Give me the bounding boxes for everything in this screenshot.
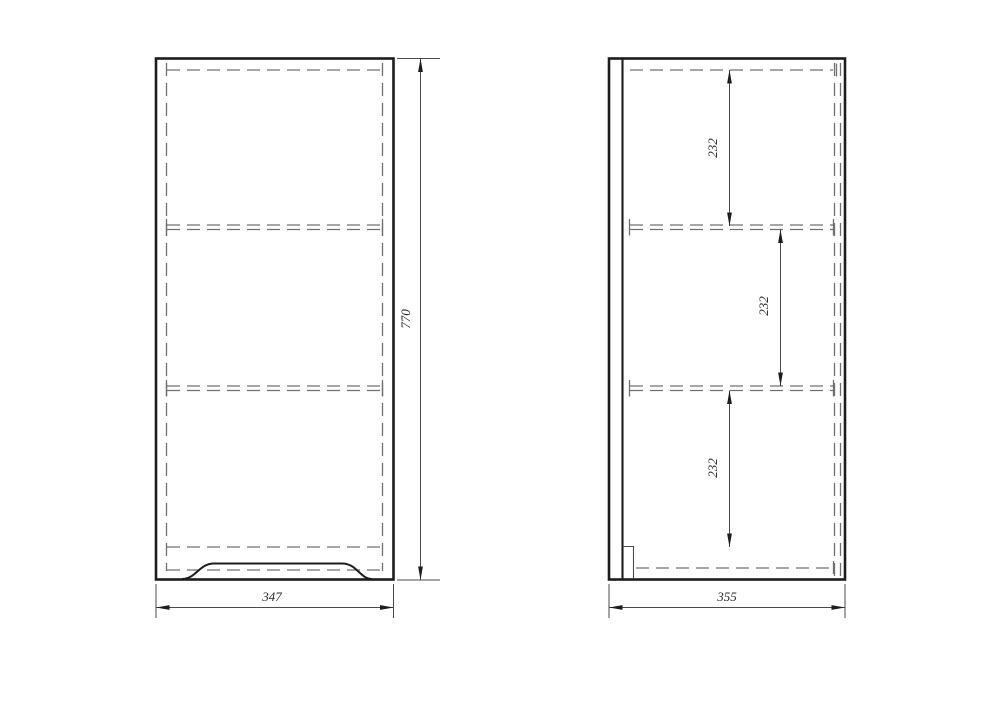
dimension-side-width: 355 (609, 584, 845, 618)
front-shelf-1 (167, 219, 383, 236)
arrow-left-icon (156, 605, 170, 610)
side-shelf-2 (630, 380, 834, 397)
side-cabinet-outline (609, 59, 845, 580)
cabinet-drawing-canvas: 770 347 (0, 0, 1000, 708)
front-view (156, 59, 394, 580)
arrow-left-icon (609, 605, 623, 610)
front-shelf-2 (167, 380, 383, 397)
front-width-dimension-label: 347 (261, 589, 282, 604)
section-middle-dimension-label: 232 (756, 296, 771, 316)
arrow-up-icon (727, 70, 732, 84)
section-bottom-dimension-label: 232 (705, 458, 720, 478)
dimension-height: 770 (397, 59, 440, 581)
arrow-down-icon (727, 534, 732, 548)
dimension-section-middle: 232 (756, 230, 783, 387)
arrow-up-icon (778, 230, 783, 244)
front-cabinet-outline (156, 59, 394, 580)
front-handle-recess-curve (182, 564, 372, 580)
height-dimension-label: 770 (398, 309, 413, 329)
dimension-front-width: 347 (156, 584, 394, 618)
arrow-down-icon (418, 567, 423, 581)
arrow-down-icon (778, 373, 783, 387)
arrow-up-icon (727, 391, 732, 405)
dimension-section-bottom: 232 (705, 391, 732, 548)
side-width-dimension-label: 355 (716, 589, 737, 604)
dimension-section-top: 232 (705, 70, 732, 226)
arrow-up-icon (418, 59, 423, 73)
arrow-right-icon (380, 605, 394, 610)
side-bottom-rail-notch (623, 547, 634, 579)
side-shelf-1 (630, 219, 834, 236)
arrow-right-icon (832, 605, 846, 610)
arrow-down-icon (727, 213, 732, 227)
technical-drawing-page: 770 347 (0, 0, 1000, 708)
section-top-dimension-label: 232 (705, 138, 720, 158)
side-view (609, 59, 845, 580)
